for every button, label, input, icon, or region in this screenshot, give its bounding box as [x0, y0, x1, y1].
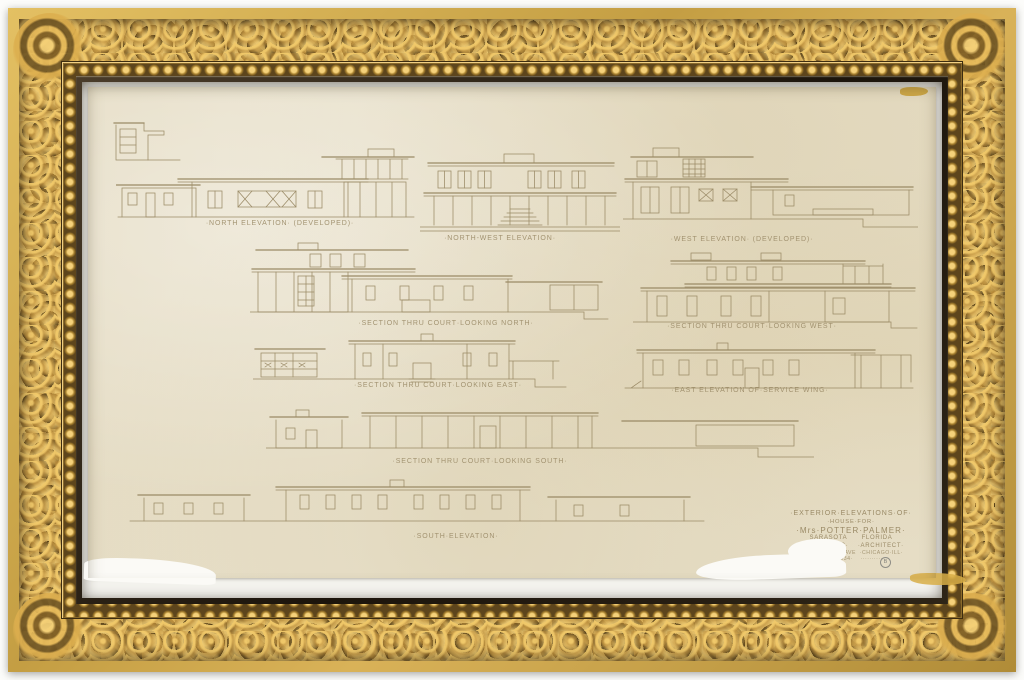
section-thru-court-west-label: ·SECTION THRU COURT·LOOKING WEST·: [667, 323, 837, 330]
title-block-line: ·Mrs·POTTER·PALMER·: [776, 526, 926, 536]
west-elevation-drawing: [623, 145, 918, 237]
section-thru-court-north-label: ·SECTION THRU COURT·LOOKING NORTH·: [358, 320, 533, 327]
section-thru-court-south-drawing: [266, 402, 814, 466]
south-elevation-label: ·SOUTH·ELEVATION·: [413, 533, 498, 540]
section-thru-court-west-drawing: [633, 252, 918, 334]
title-block-line: ·EXTERIOR·ELEVATIONS·OF·: [776, 510, 926, 519]
tape-stain: [900, 87, 928, 96]
paper-fragment: [910, 573, 966, 585]
paper-tear: [788, 539, 846, 563]
east-elevation-service-wing-label: ·EAST ELEVATION OF·SERVICE WING·: [671, 387, 828, 394]
northwest-elevation-drawing: [420, 149, 620, 239]
section-thru-court-north-drawing: [250, 242, 610, 328]
section-thru-court-east-label: ·SECTION THRU COURT·LOOKING EAST·: [354, 382, 522, 389]
mat-backing: ·NORTH ELEVATION· (DEVELOPED)·: [82, 82, 942, 598]
drawing-sheet: ·NORTH ELEVATION· (DEVELOPED)·: [88, 87, 936, 578]
paper-edge-lift: [84, 557, 217, 586]
framed-artwork-photo: ·NORTH ELEVATION· (DEVELOPED)·: [0, 0, 1024, 680]
south-elevation-drawing: [128, 475, 706, 535]
collection-stamp: B: [880, 557, 891, 568]
west-elevation-label: ·WEST ELEVATION· (DEVELOPED)·: [671, 236, 814, 243]
north-elevation-label: ·NORTH ELEVATION· (DEVELOPED)·: [206, 220, 354, 227]
north-elevation-drawing: [116, 145, 416, 227]
northwest-elevation-label: ·NORTH-WEST ELEVATION·: [444, 235, 556, 242]
east-elevation-service-wing-drawing: [623, 342, 918, 406]
title-block-line: ·HOUSE·FOR·: [776, 519, 926, 526]
section-thru-court-south-label: ·SECTION THRU COURT·LOOKING SOUTH·: [392, 458, 567, 465]
